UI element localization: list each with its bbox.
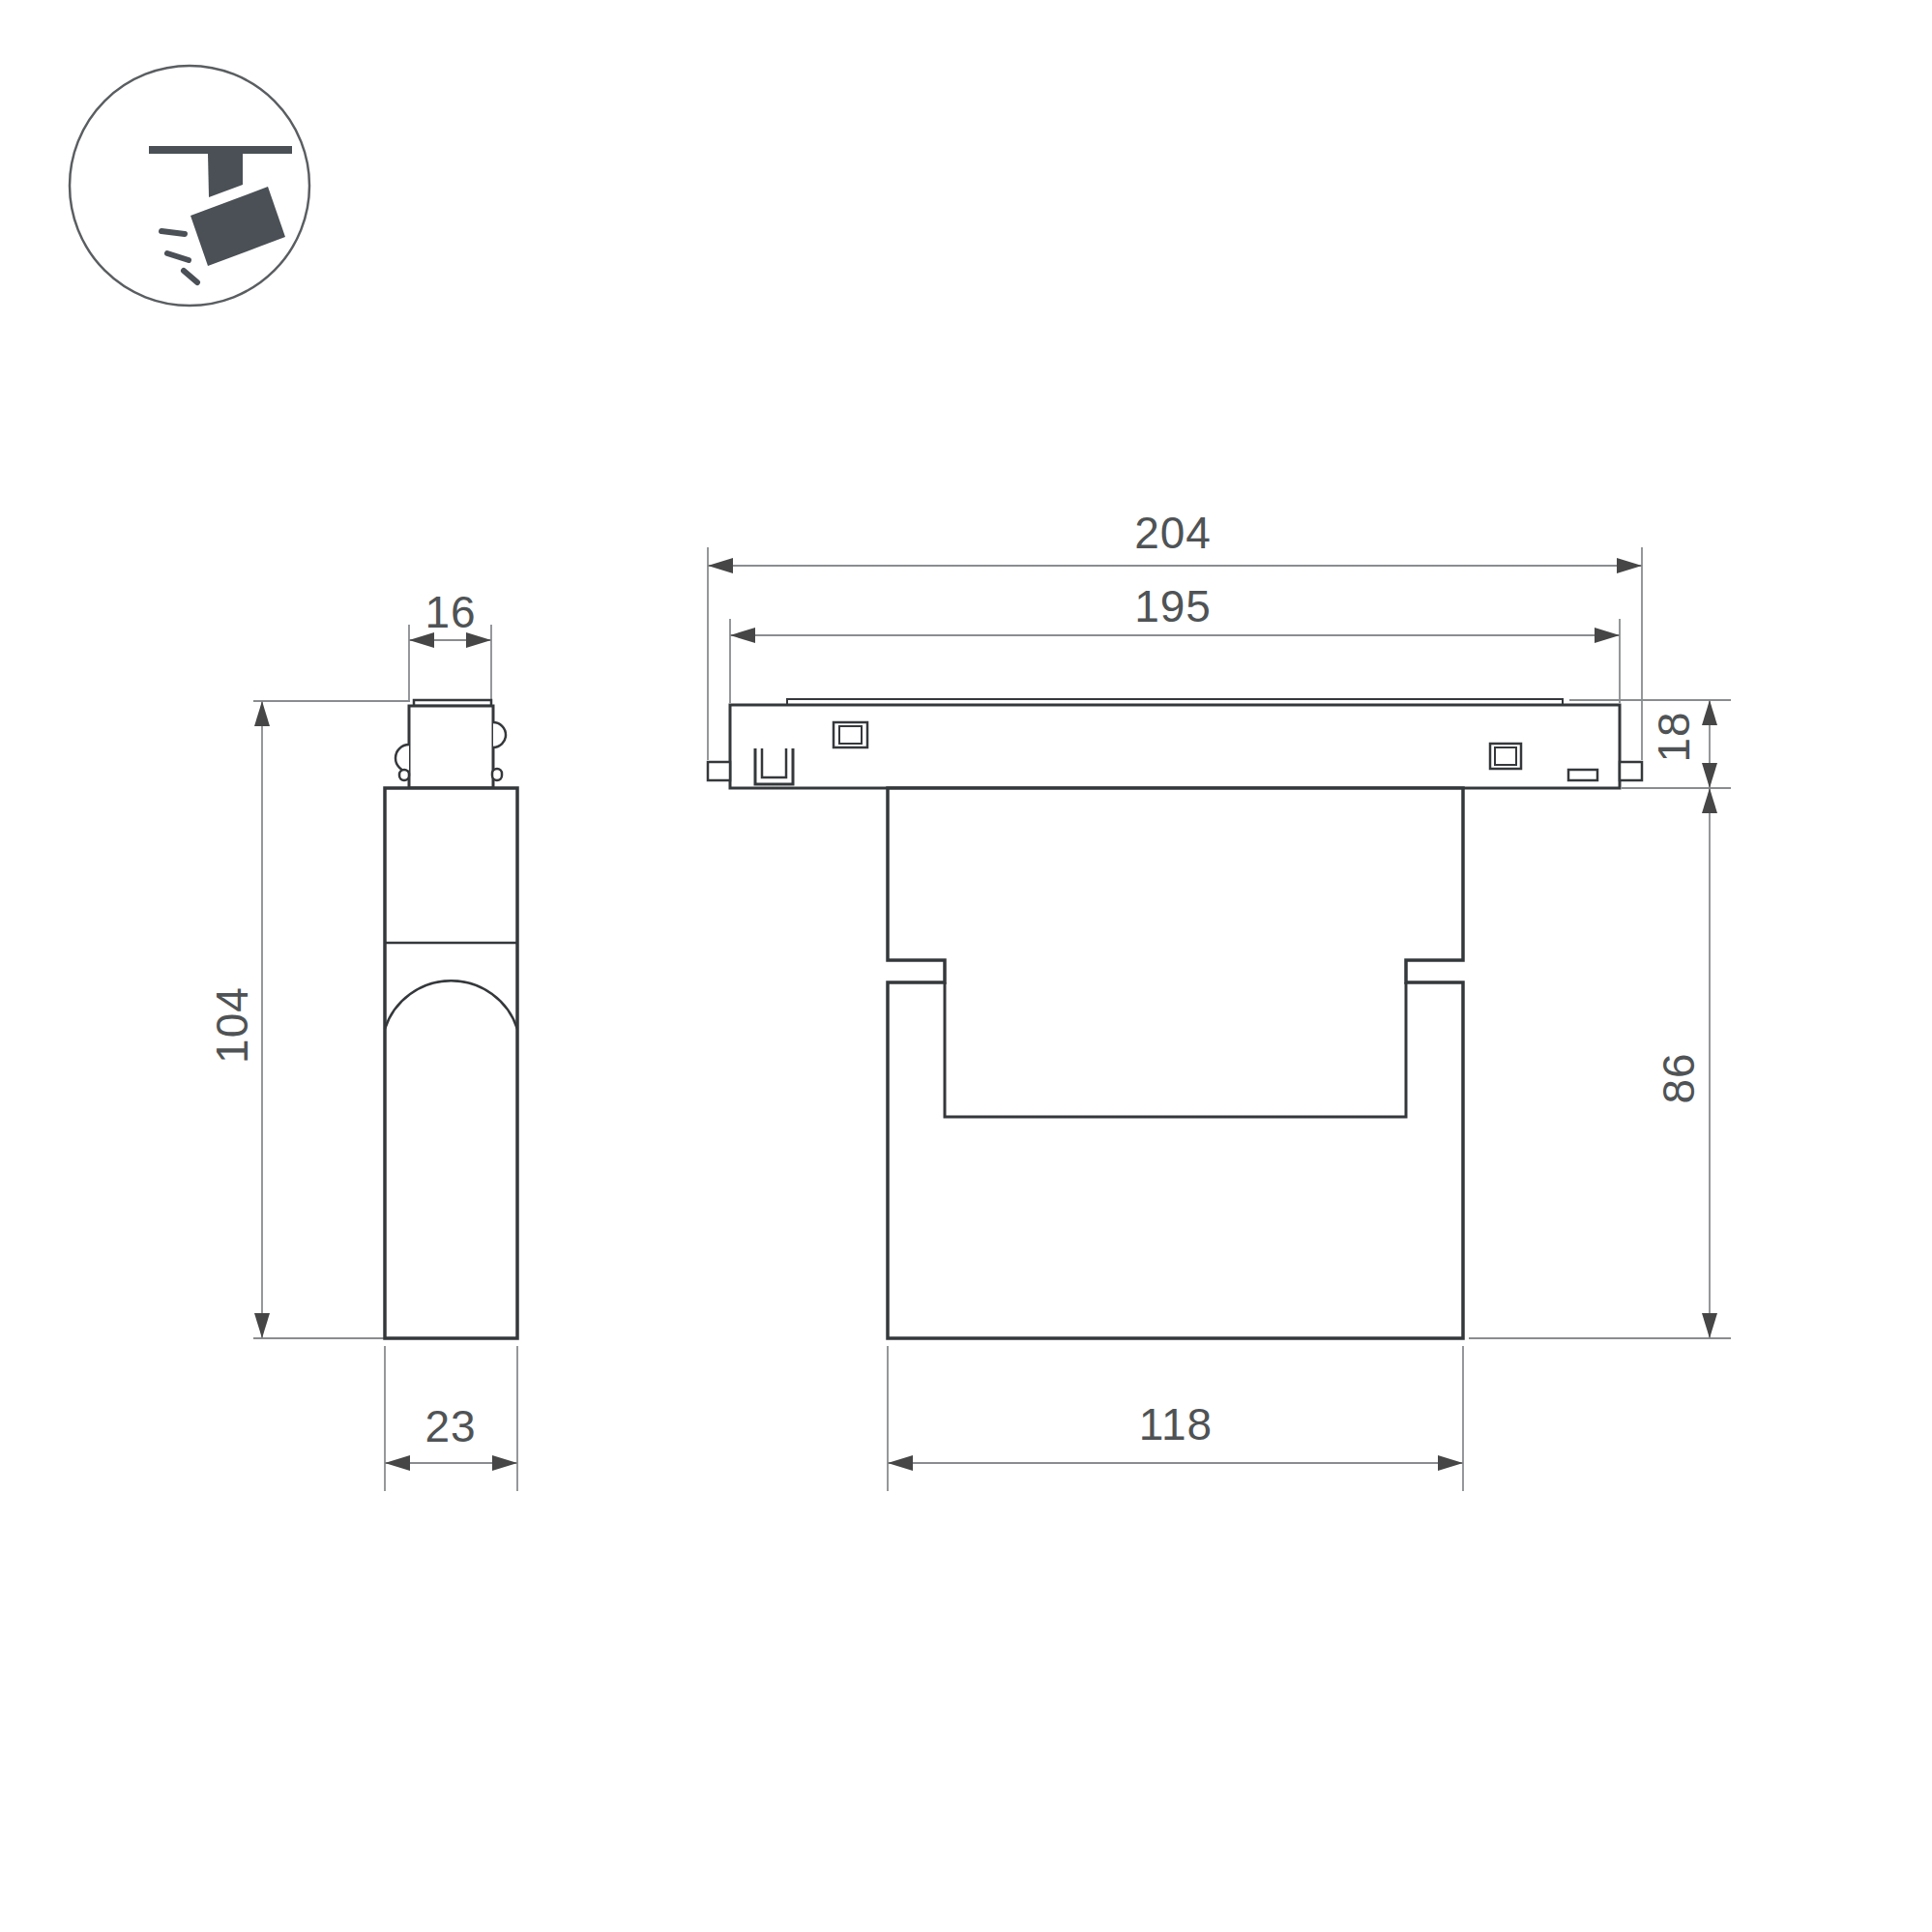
icon-stem (208, 154, 243, 197)
side-lamp-body (385, 788, 517, 1338)
icon-light-rays (161, 231, 197, 282)
side-view (385, 700, 517, 1338)
dimension-drawing (0, 0, 1932, 1932)
dim-label-connector-width: 16 (424, 590, 476, 634)
side-track-connector (409, 706, 493, 788)
icon-circle (70, 66, 309, 306)
dim-label-body-height: 86 (1656, 1052, 1701, 1103)
icon-lamp-head (190, 187, 285, 266)
track-spotlight-icon (70, 66, 309, 306)
front-contact-pin-left (708, 762, 730, 780)
dim-label-lamp-width: 118 (1139, 1402, 1213, 1447)
side-clip-foot-right (492, 769, 502, 780)
side-clip-left (395, 745, 409, 772)
dim-label-body-depth: 23 (424, 1404, 476, 1449)
dim-label-overall-length: 204 (1134, 511, 1212, 555)
front-lamp-body-outline (888, 788, 1463, 1338)
dim-label-overall-height: 104 (210, 986, 254, 1064)
dim-label-track-length: 195 (1134, 584, 1212, 629)
icon-track-bar (149, 146, 292, 154)
side-clip-right (493, 722, 506, 747)
front-view (708, 699, 1642, 1338)
front-contact-pin-right (1620, 762, 1642, 780)
side-clip-foot-left (399, 770, 409, 780)
dim-label-track-height: 18 (1652, 711, 1696, 762)
dimension-drawing-page: 204 195 18 86 118 16 104 23 (0, 0, 1932, 1932)
